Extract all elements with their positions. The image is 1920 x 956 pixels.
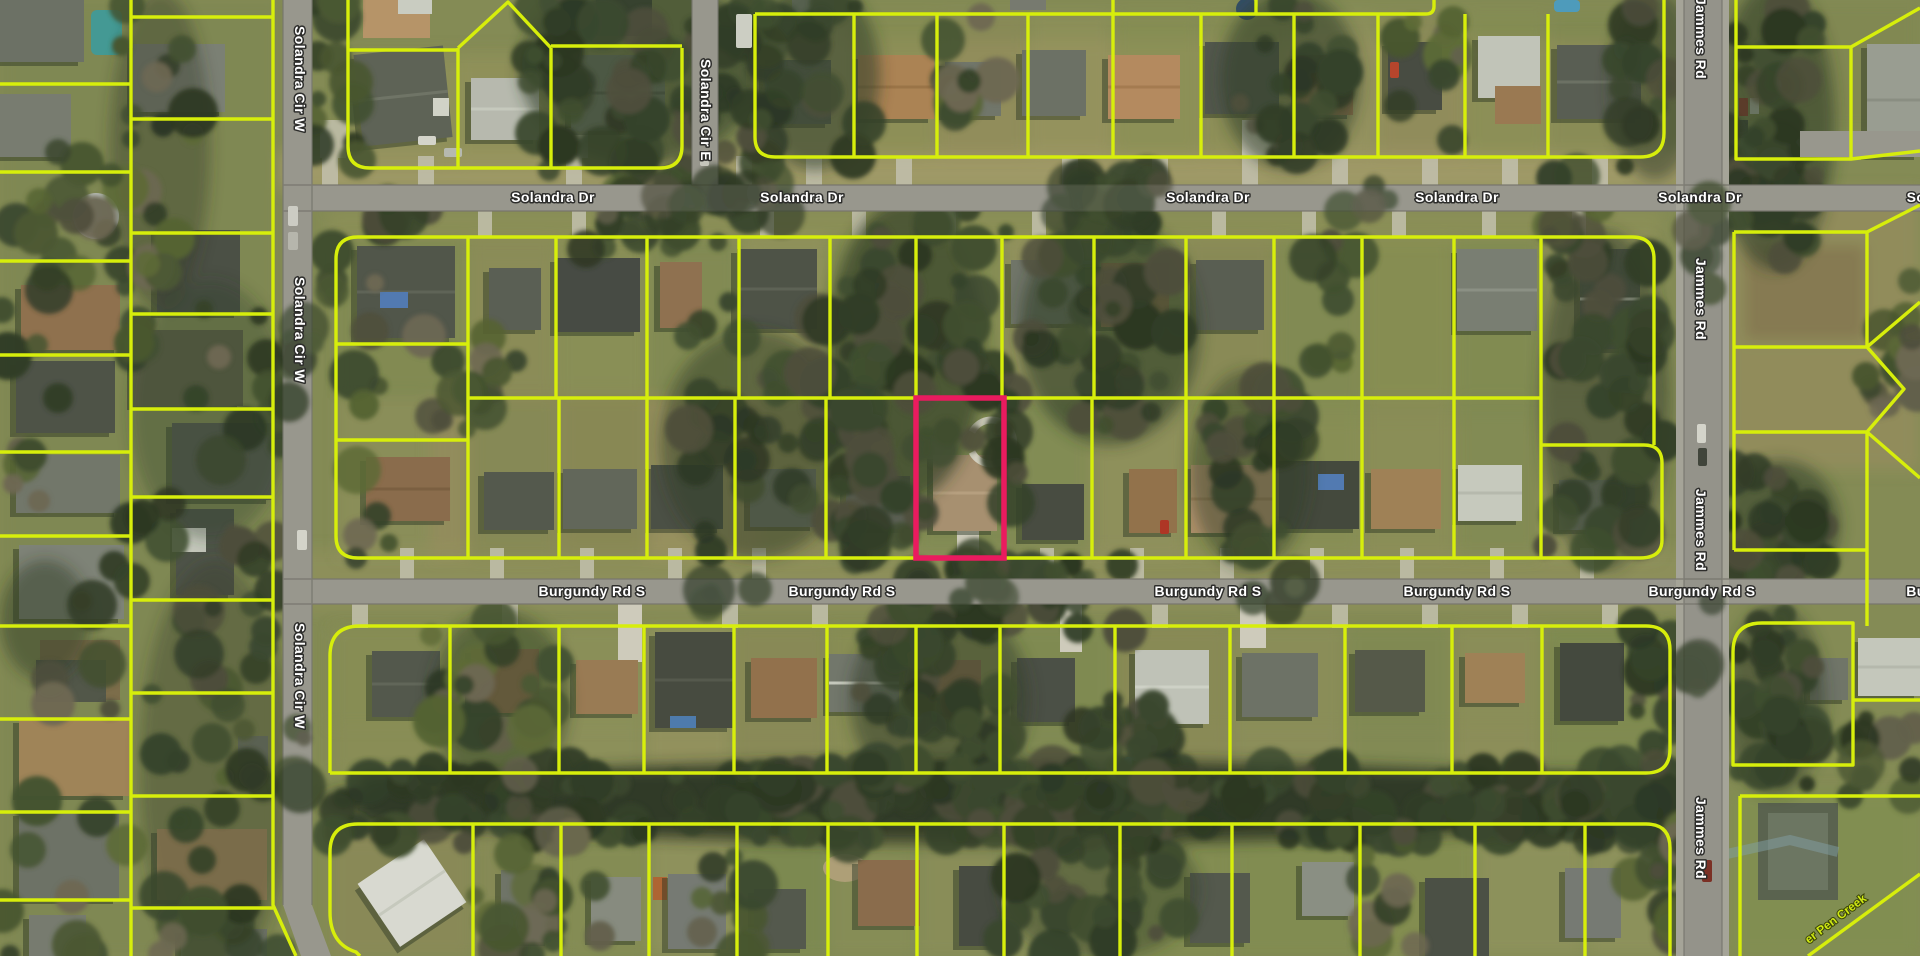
svg-text:Jammes Rd: Jammes Rd	[1693, 489, 1709, 571]
svg-text:Burgundy Rd S: Burgundy Rd S	[788, 583, 895, 599]
svg-text:Jammes Rd: Jammes Rd	[1693, 258, 1709, 340]
svg-text:Solandra Cir E: Solandra Cir E	[698, 59, 714, 161]
svg-text:Solandra Dr: Solandra Dr	[760, 189, 844, 205]
svg-text:Burgundy Rd S: Burgundy Rd S	[1154, 583, 1261, 599]
svg-text:Jammes Rd: Jammes Rd	[1693, 797, 1709, 879]
svg-text:Solandra Dr: Solandra Dr	[511, 189, 595, 205]
svg-text:Bu: Bu	[1906, 583, 1920, 599]
svg-text:Burgundy Rd S: Burgundy Rd S	[1648, 583, 1755, 599]
svg-text:Solandra Dr: Solandra Dr	[1415, 189, 1499, 205]
svg-text:Solandra Dr: Solandra Dr	[1166, 189, 1250, 205]
svg-text:Solandra Cir W: Solandra Cir W	[292, 623, 308, 729]
svg-text:Solandra Cir W: Solandra Cir W	[292, 26, 308, 132]
svg-text:Solandra Cir W: Solandra Cir W	[292, 277, 308, 383]
svg-text:Burgundy Rd S: Burgundy Rd S	[538, 583, 645, 599]
svg-text:Burgundy Rd S: Burgundy Rd S	[1403, 583, 1510, 599]
svg-text:So: So	[1907, 189, 1920, 205]
svg-text:Solandra Dr: Solandra Dr	[1658, 189, 1742, 205]
svg-text:Jammes Rd: Jammes Rd	[1693, 0, 1709, 79]
